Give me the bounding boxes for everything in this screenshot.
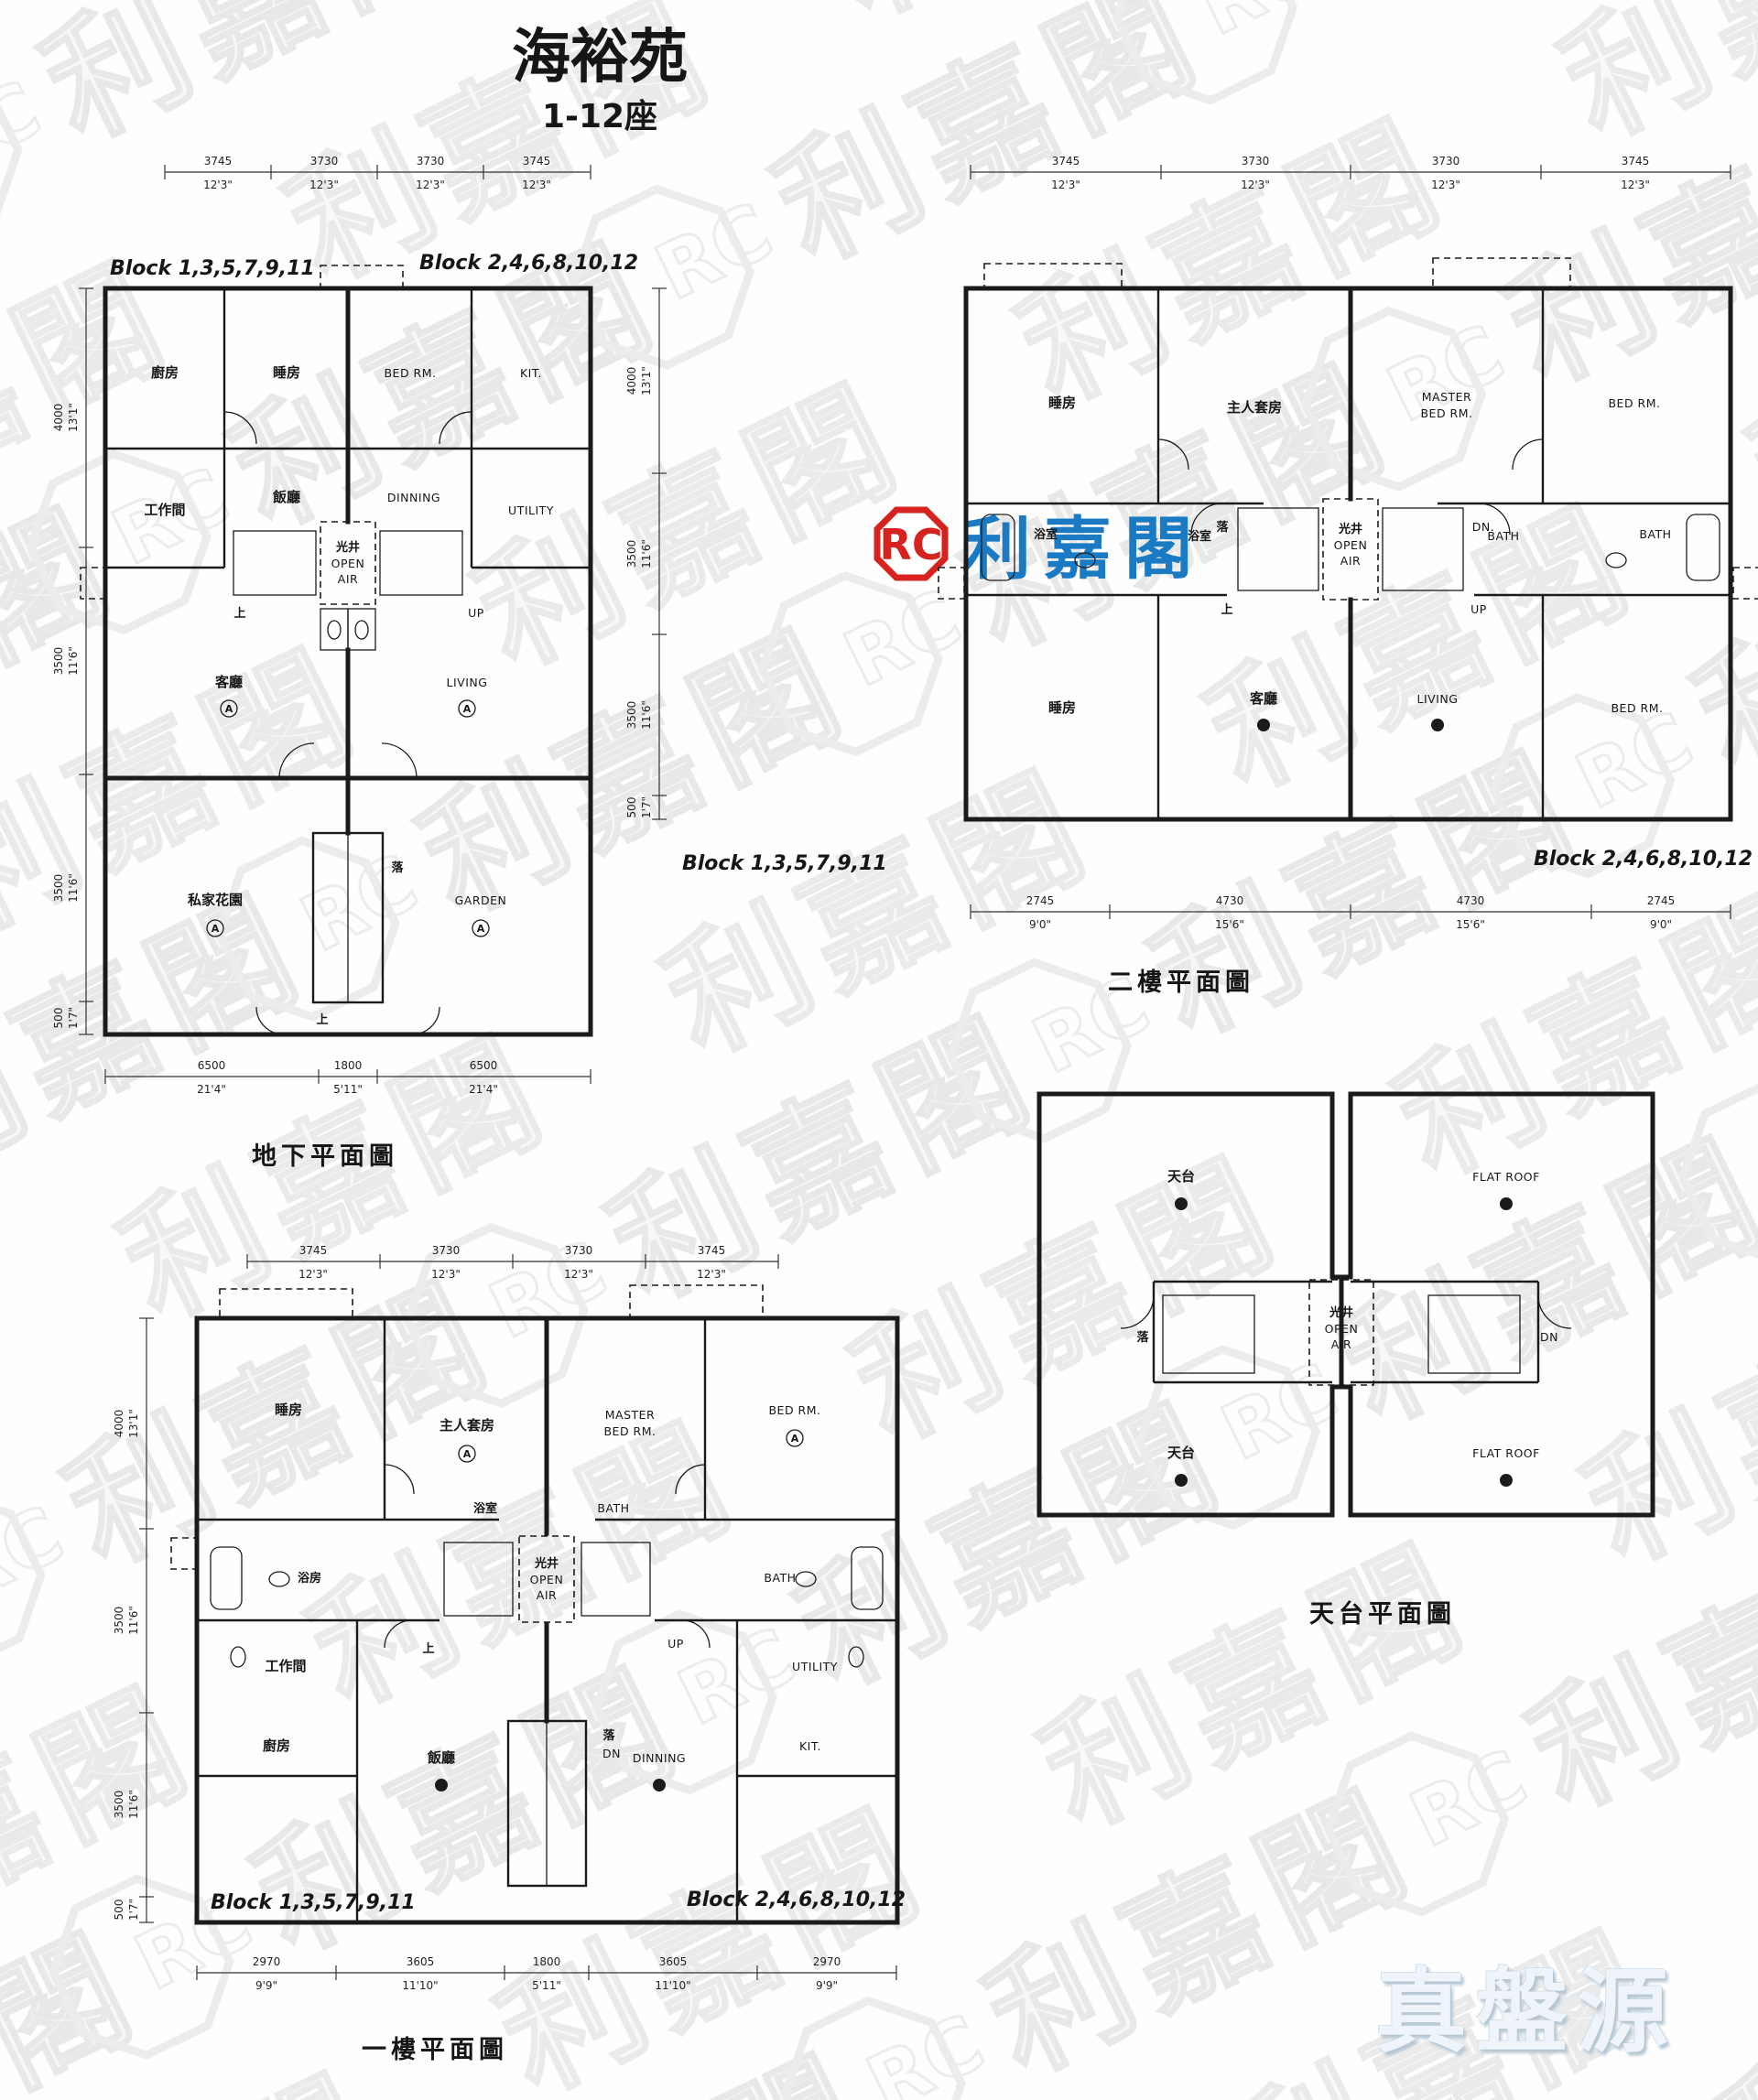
dim-label: 5'11": [532, 1979, 561, 1992]
room-label-bed-cn: 睡房: [273, 364, 300, 381]
dim-label: 12'3": [1431, 179, 1460, 191]
dim-label: 12'3": [522, 179, 551, 191]
light-well-label-air: AIR: [537, 1588, 557, 1602]
stair-dn-en: DN.: [1472, 520, 1494, 534]
room-label-bed-en: BED RM.: [768, 1403, 820, 1417]
door-arc: [279, 743, 314, 778]
room-label-master-en: BED RM.: [1420, 406, 1472, 420]
room-label-bed-en: BED RM.: [384, 366, 436, 380]
plan-caption-first: 一樓平面圖: [362, 2036, 508, 2064]
flat-marker-dot: [1257, 719, 1270, 731]
light-well-label-cn: 光井: [534, 1556, 559, 1571]
dim-label: 3730: [565, 1244, 593, 1257]
toilet-icon: [231, 1647, 245, 1667]
door-arc: [1513, 439, 1543, 470]
room-label-kit-en: KIT.: [799, 1739, 821, 1753]
room-label-roof-terrace-cn: 天台: [1167, 1445, 1195, 1461]
room-label-bed-cn: 睡房: [1048, 699, 1076, 716]
stair-down-cn: 落: [602, 1728, 615, 1743]
flat-marker-a: A: [225, 703, 233, 715]
dim-label: 3500: [113, 1791, 125, 1819]
light-well-label-cn: 光井: [1329, 1305, 1353, 1320]
ac-platform-dashed: [1733, 568, 1758, 599]
dim-label: 11'6": [640, 539, 653, 568]
room-label-flat-roof-en: FLAT ROOF: [1472, 1170, 1540, 1184]
room-label-bed-en: BED RM.: [1608, 396, 1660, 410]
block-label-left: Block 1,3,5,7,9,11: [211, 1891, 416, 1914]
dim-label: 1800: [334, 1059, 363, 1072]
dim-label: 12'3": [203, 179, 233, 191]
toilet-icon: [1075, 553, 1095, 568]
stair-up-en: UP: [1470, 602, 1487, 616]
dim-label: 11'6": [127, 1790, 140, 1819]
dim-label: 11'10": [655, 1979, 690, 1992]
door-arc: [682, 1620, 710, 1648]
dim-label: 500: [625, 797, 638, 818]
block-label-left: Block 1,3,5,7,9,11: [682, 852, 887, 875]
dim-label: 12'3": [1051, 179, 1080, 191]
dim-label: 3745: [523, 155, 551, 168]
dim-label: 3500: [52, 874, 65, 903]
dim-label: 9'9": [255, 1979, 277, 1992]
room-label-bath-en: BATH: [764, 1571, 796, 1585]
dim-label: 3730: [432, 1244, 461, 1257]
flat-marker-a: A: [477, 923, 485, 935]
flat-marker-a: A: [463, 703, 472, 715]
dim-row-top: 3745 12'3" 3730 12'3" 3730 12'3" 3745 12…: [165, 155, 591, 191]
walls-first: [171, 1285, 897, 1922]
dim-label: 4000: [113, 1410, 125, 1438]
dim-label: 4730: [1216, 894, 1244, 907]
dim-label: 3730: [1242, 155, 1270, 168]
dim-label: 1'7": [127, 1899, 140, 1921]
room-label-work-cn: 工作間: [144, 502, 185, 518]
dim-label: 3730: [1432, 155, 1460, 168]
dim-label: 3500: [625, 540, 638, 568]
dim-label: 3605: [659, 1955, 688, 1968]
estate-subtitle-blocks: 1-12座: [302, 90, 897, 137]
stair-up-cn: 上: [316, 1013, 328, 1027]
light-well-label-air: AIR: [1331, 1337, 1351, 1351]
door-arc: [412, 1007, 439, 1034]
dim-label: 13'1": [127, 1409, 140, 1438]
room-label-utility-en: UTILITY: [508, 503, 554, 517]
door-arc: [224, 412, 256, 444]
canopy-dashed: [220, 1289, 353, 1318]
room-label-roof-terrace-cn: 天台: [1167, 1168, 1195, 1185]
stair-down-cn: 落: [391, 861, 404, 875]
stair-dn-en: DN: [602, 1747, 621, 1760]
room-label-master-cn: 主人套房: [1227, 399, 1282, 416]
dim-label: 12'3": [416, 179, 445, 191]
dim-label: 4730: [1457, 894, 1485, 907]
dim-label: 3745: [1622, 155, 1650, 168]
room-label-master-en: BED RM.: [603, 1424, 656, 1438]
dim-label: 3605: [407, 1955, 435, 1968]
dim-label: 5'11": [333, 1083, 363, 1096]
room-label-living-en: LIVING: [447, 676, 488, 689]
dim-label: 11'6": [640, 700, 653, 730]
light-well-label-open: OPEN: [331, 557, 365, 570]
dim-row-bottom: 2970 9'9" 3605 11'10" 1800 5'11" 3605 11…: [197, 1955, 896, 1992]
room-label-bed-en: BED RM.: [1611, 701, 1663, 715]
door-arc: [385, 1465, 414, 1494]
flat-marker-a: A: [463, 1448, 472, 1460]
dim-label: 3745: [698, 1244, 726, 1257]
light-well-label-open: OPEN: [1334, 538, 1368, 552]
block-label-left: Block 1,3,5,7,9,11: [110, 257, 315, 280]
flat-marker-a: A: [212, 923, 220, 935]
room-label-master-en: MASTER: [605, 1408, 656, 1422]
door-arc: [439, 412, 472, 444]
dim-row-top: 3745 12'3" 3730 12'3" 3730 12'3" 3745 12…: [971, 155, 1731, 191]
flat-marker-dot: [1500, 1474, 1513, 1487]
flat-marker-dot: [1500, 1197, 1513, 1210]
toilet-icon: [355, 621, 368, 639]
room-label-bed-cn: 睡房: [275, 1402, 302, 1418]
title-block: 海裕苑 1-12座: [302, 26, 897, 137]
room-label-utility-en: UTILITY: [792, 1660, 838, 1673]
room-label-bath-en: BATH: [1639, 527, 1671, 541]
room-label-bath-cn: 浴室: [473, 1501, 497, 1516]
walls-roof: [1039, 1094, 1653, 1515]
dim-label: 3745: [1052, 155, 1080, 168]
dim-label: 2745: [1647, 894, 1676, 907]
room-label-master-cn: 主人套房: [439, 1417, 494, 1434]
dim-label: 21'4": [197, 1083, 226, 1096]
dim-label: 9'0": [1650, 918, 1672, 931]
dim-label: 21'4": [469, 1083, 498, 1096]
block-label-right: Block 2,4,6,8,10,12: [687, 1889, 906, 1911]
dim-label: 13'1": [640, 366, 653, 395]
dim-label: 12'3": [1241, 179, 1270, 191]
toilet-icon: [1606, 553, 1626, 568]
dim-label: 1'7": [640, 796, 653, 818]
dim-label: 12'3": [298, 1268, 328, 1281]
flat-marker-dot: [1175, 1474, 1188, 1487]
ac-platform-dashed: [171, 1538, 197, 1569]
dim-label: 4000: [625, 367, 638, 395]
plan-caption-ground: 地下平面圖: [252, 1142, 398, 1171]
canopy-dashed: [320, 265, 403, 288]
flat-marker-dot: [1175, 1197, 1188, 1210]
dim-label: 3745: [299, 1244, 328, 1257]
dim-label: 12'3": [697, 1268, 726, 1281]
floorplan-sheet: 利嘉閣 RC 利嘉閣 海裕苑 1-12座 RC 利嘉閣: [0, 0, 1758, 2100]
stair-up-cn: 上: [1221, 603, 1232, 617]
room-label-flat-roof-en: FLAT ROOF: [1472, 1446, 1540, 1460]
dim-label: 3730: [310, 155, 339, 168]
dim-label: 11'10": [402, 1979, 438, 1992]
bathtub-icon: [1687, 514, 1720, 580]
door-arc: [1158, 439, 1188, 470]
stair-dn-en: DN: [1540, 1330, 1558, 1344]
room-label-living-en: LIVING: [1417, 692, 1459, 706]
room-label-bath-cn: 浴室: [1034, 527, 1058, 542]
stair-up-cn: 上: [422, 1642, 434, 1656]
dim-row-bottom: 6500 21'4" 1800 5'11" 6500 21'4": [105, 1059, 591, 1096]
door-arc: [1121, 1295, 1154, 1328]
dim-label: 3730: [417, 155, 445, 168]
light-well-label-open: OPEN: [530, 1573, 564, 1586]
dim-label: 2970: [253, 1955, 281, 1968]
room-label-living-cn: 客廳: [1249, 690, 1277, 707]
room-label-dining-en: DINNING: [387, 491, 440, 504]
flat-marker-dot: [653, 1779, 666, 1791]
dim-label: 11'6": [67, 873, 80, 903]
room-labels-roof: 天台 FLAT ROOF 天台 FLAT ROOF 光井 OPEN AIR 落 …: [1136, 1168, 1557, 1487]
stair-down-cn: 落: [1136, 1330, 1149, 1345]
dim-col-left: 4000 13'1" 3500 11'6" 3500 11'6" 500 1'7…: [625, 288, 667, 819]
room-label-dining-cn: 飯廳: [427, 1749, 455, 1766]
dim-label: 6500: [198, 1059, 226, 1072]
flat-marker-dot: [1431, 719, 1444, 731]
ac-platform-dashed: [939, 568, 964, 599]
room-label-private-garden-cn: 私家花園: [187, 892, 243, 908]
door-arc: [382, 743, 417, 778]
dim-label: 9'9": [816, 1979, 838, 1992]
toilet-icon: [849, 1647, 863, 1667]
dim-label: 500: [52, 1008, 65, 1029]
dim-label: 15'6": [1215, 918, 1244, 931]
stair-down-cn: 落: [1216, 520, 1229, 535]
room-label-kit-en: KIT.: [520, 366, 542, 380]
dim-label: 15'6": [1456, 918, 1485, 931]
door-arc: [256, 1007, 284, 1034]
dim-label: 3745: [204, 155, 233, 168]
room-label-dining-cn: 飯廳: [272, 489, 300, 505]
estate-title: 海裕苑: [302, 26, 897, 90]
dim-row-bottom: 2745 9'0" 4730 15'6" 4730 15'6" 2745 9'0…: [971, 894, 1731, 931]
room-label-living-cn: 客廳: [214, 674, 243, 690]
dim-label: 1800: [533, 1955, 561, 1968]
canopy-dashed: [1433, 258, 1570, 288]
room-label-bed-cn: 睡房: [1048, 395, 1076, 411]
stair-up-cn: 上: [233, 607, 245, 621]
dim-label: 12'3": [309, 179, 339, 191]
dim-label: 11'6": [67, 646, 80, 676]
room-label-kitchen-cn: 廚房: [151, 364, 179, 381]
dim-label: 1'7": [67, 1007, 80, 1029]
dim-label: 12'3": [564, 1268, 593, 1281]
dim-label: 13'1": [67, 403, 80, 432]
room-label-bath-cn: 浴室: [1188, 529, 1211, 544]
floor-plan-ground: 3745 12'3" 3730 12'3" 3730 12'3" 3745 12…: [46, 137, 623, 1208]
light-well-label-air: AIR: [338, 572, 358, 586]
plan-caption-second: 二樓平面圖: [1108, 969, 1254, 997]
door-arc: [385, 1620, 412, 1648]
dim-label: 3500: [52, 647, 65, 676]
dim-col-left: 4000 13'1" 3500 11'6" 3500 11'6" 500 1'7…: [113, 1318, 154, 1922]
floor-plan-first: 3745 12'3" 3730 12'3" 3730 12'3" 3745 12…: [82, 1190, 1007, 2100]
dim-label: 12'3": [1621, 179, 1650, 191]
bathtub-icon: [852, 1547, 883, 1609]
dim-label: 12'3": [431, 1268, 461, 1281]
flat-marker-a: A: [791, 1433, 799, 1445]
dim-label: 2745: [1026, 894, 1055, 907]
room-label-work-cn: 工作間: [265, 1658, 306, 1674]
toilet-icon: [269, 1572, 289, 1586]
toilet-icon: [796, 1572, 816, 1586]
light-well-label-cn: 光井: [1338, 522, 1362, 536]
ac-platform-dashed: [81, 568, 105, 599]
dim-col-left: 4000 13'1" 3500 11'6" 3500 11'6" 500 1'7…: [52, 288, 93, 1034]
floor-plan-roof: 天台 FLAT ROOF 天台 FLAT ROOF 光井 OPEN AIR 落 …: [1025, 1071, 1740, 1675]
bathtub-icon: [982, 514, 1015, 580]
stair-up-en: UP: [468, 606, 484, 620]
block-label-right: Block 2,4,6,8,10,12: [419, 252, 638, 275]
room-label-bath-en: BATH: [597, 1501, 629, 1515]
property-source-logo: 真盤源: [1375, 1937, 1677, 2070]
dim-label: 2970: [813, 1955, 841, 1968]
toilet-icon: [328, 621, 341, 639]
door-arc: [1538, 1295, 1571, 1328]
dim-label: 9'0": [1029, 918, 1051, 931]
dim-label: 3500: [625, 701, 638, 730]
door-arc: [676, 1465, 705, 1494]
room-labels-first: 睡房 主人套房 A MASTER BED RM. BED RM. A 浴房 浴室…: [263, 1402, 838, 1791]
dim-label: 6500: [470, 1059, 498, 1072]
block-label-right: Block 2,4,6,8,10,12: [1534, 848, 1753, 871]
bathtub-icon: [211, 1547, 242, 1609]
dim-label: 500: [113, 1900, 125, 1921]
light-well-label-cn: 光井: [335, 540, 360, 555]
canopy-dashed: [984, 264, 1122, 288]
room-label-kitchen-cn: 廚房: [263, 1737, 290, 1754]
stair-up-en: UP: [667, 1637, 684, 1651]
dim-label: 3500: [113, 1607, 125, 1635]
room-label-garden-en: GARDEN: [455, 893, 507, 907]
dim-row-top: 3745 12'3" 3730 12'3" 3730 12'3" 3745 12…: [247, 1244, 778, 1281]
light-well-label-air: AIR: [1340, 554, 1361, 568]
canopy-dashed: [630, 1285, 763, 1318]
room-label-master-en: MASTER: [1422, 390, 1472, 404]
room-label-dining-en: DINNING: [633, 1751, 686, 1765]
plan-caption-roof: 天台平面圖: [1309, 1599, 1456, 1629]
room-label-bath-left-cn: 浴房: [298, 1571, 321, 1586]
floor-plan-second: 3745 12'3" 3730 12'3" 3730 12'3" 3745 12…: [623, 137, 1758, 1016]
dim-label: 11'6": [127, 1606, 140, 1635]
light-well-label-open: OPEN: [1325, 1322, 1359, 1336]
dim-label: 4000: [52, 404, 65, 432]
flat-marker-dot: [435, 1779, 448, 1791]
